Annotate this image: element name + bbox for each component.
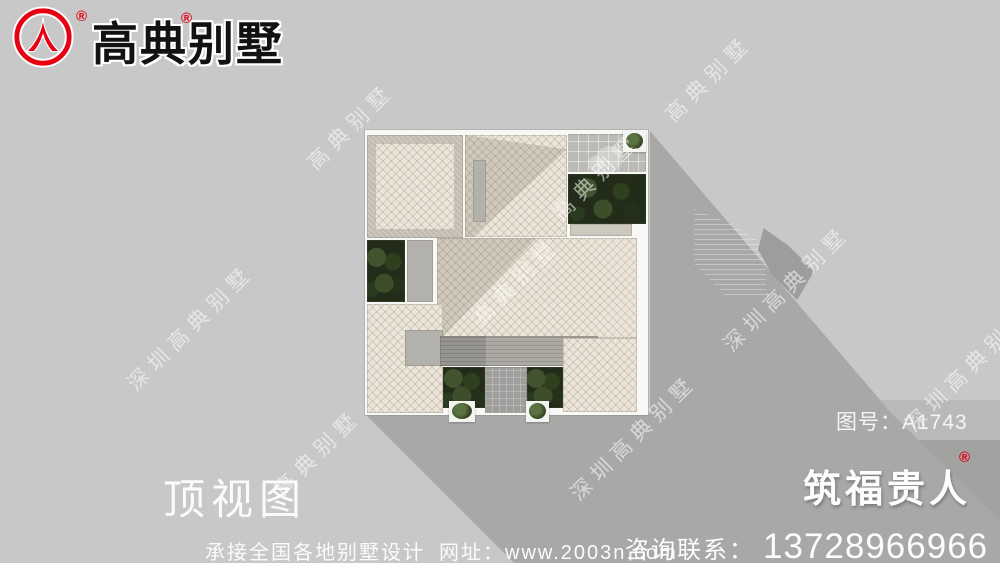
planter-plant [529,403,546,419]
roof-wall-strip [473,160,486,222]
gaodian-seal-icon [12,6,74,68]
gaodian-logo [12,6,74,73]
footer-website-label: 网址： [439,542,505,563]
registered-mark: ® [181,10,192,27]
contact-label: 咨询联系： [625,530,755,563]
roof-section-bottom-right [563,338,637,412]
planter-box-left [449,401,475,422]
entry-pergola-shade [440,336,486,366]
contact-phone-number: 13728966966 [763,527,988,563]
watermark-text: 高典别墅 [658,28,758,128]
terrace-bench [570,224,632,236]
planter-box-right [526,401,549,422]
drawing-number-label: 图号： [836,411,902,434]
watermark-logo-circle [588,146,622,176]
side-walkway [407,240,433,302]
watermark-text: 深圳高典别墅 [120,257,260,397]
footer-service-text: 承接全国各地别墅设计 [205,542,425,563]
side-garden [367,240,405,302]
bottom-left-walkway [405,330,443,366]
footer-contact: 咨询联系： 13728966966 [625,527,988,563]
secondary-brand-name: 筑福贵人 [803,458,971,513]
poster-canvas: 高典别墅 高典别墅 高典别墅 深圳高典别墅 深圳高典别墅 深圳高典别墅 高典别墅… [0,0,1000,563]
entry-driveway [485,367,527,413]
planter-plant [452,403,472,419]
roof-section-top-left-tiles [375,143,455,230]
drawing-number: 图号：A1743 [836,406,968,436]
view-title: 顶视图 [163,466,307,527]
registered-mark: ® [959,449,970,466]
footer-service-line: 承接全国各地别墅设计网址：www.2003n.com [205,536,678,563]
drawing-number-value: A1743 [902,411,968,434]
watermark-circle [588,156,604,172]
registered-mark: ® [76,8,87,25]
